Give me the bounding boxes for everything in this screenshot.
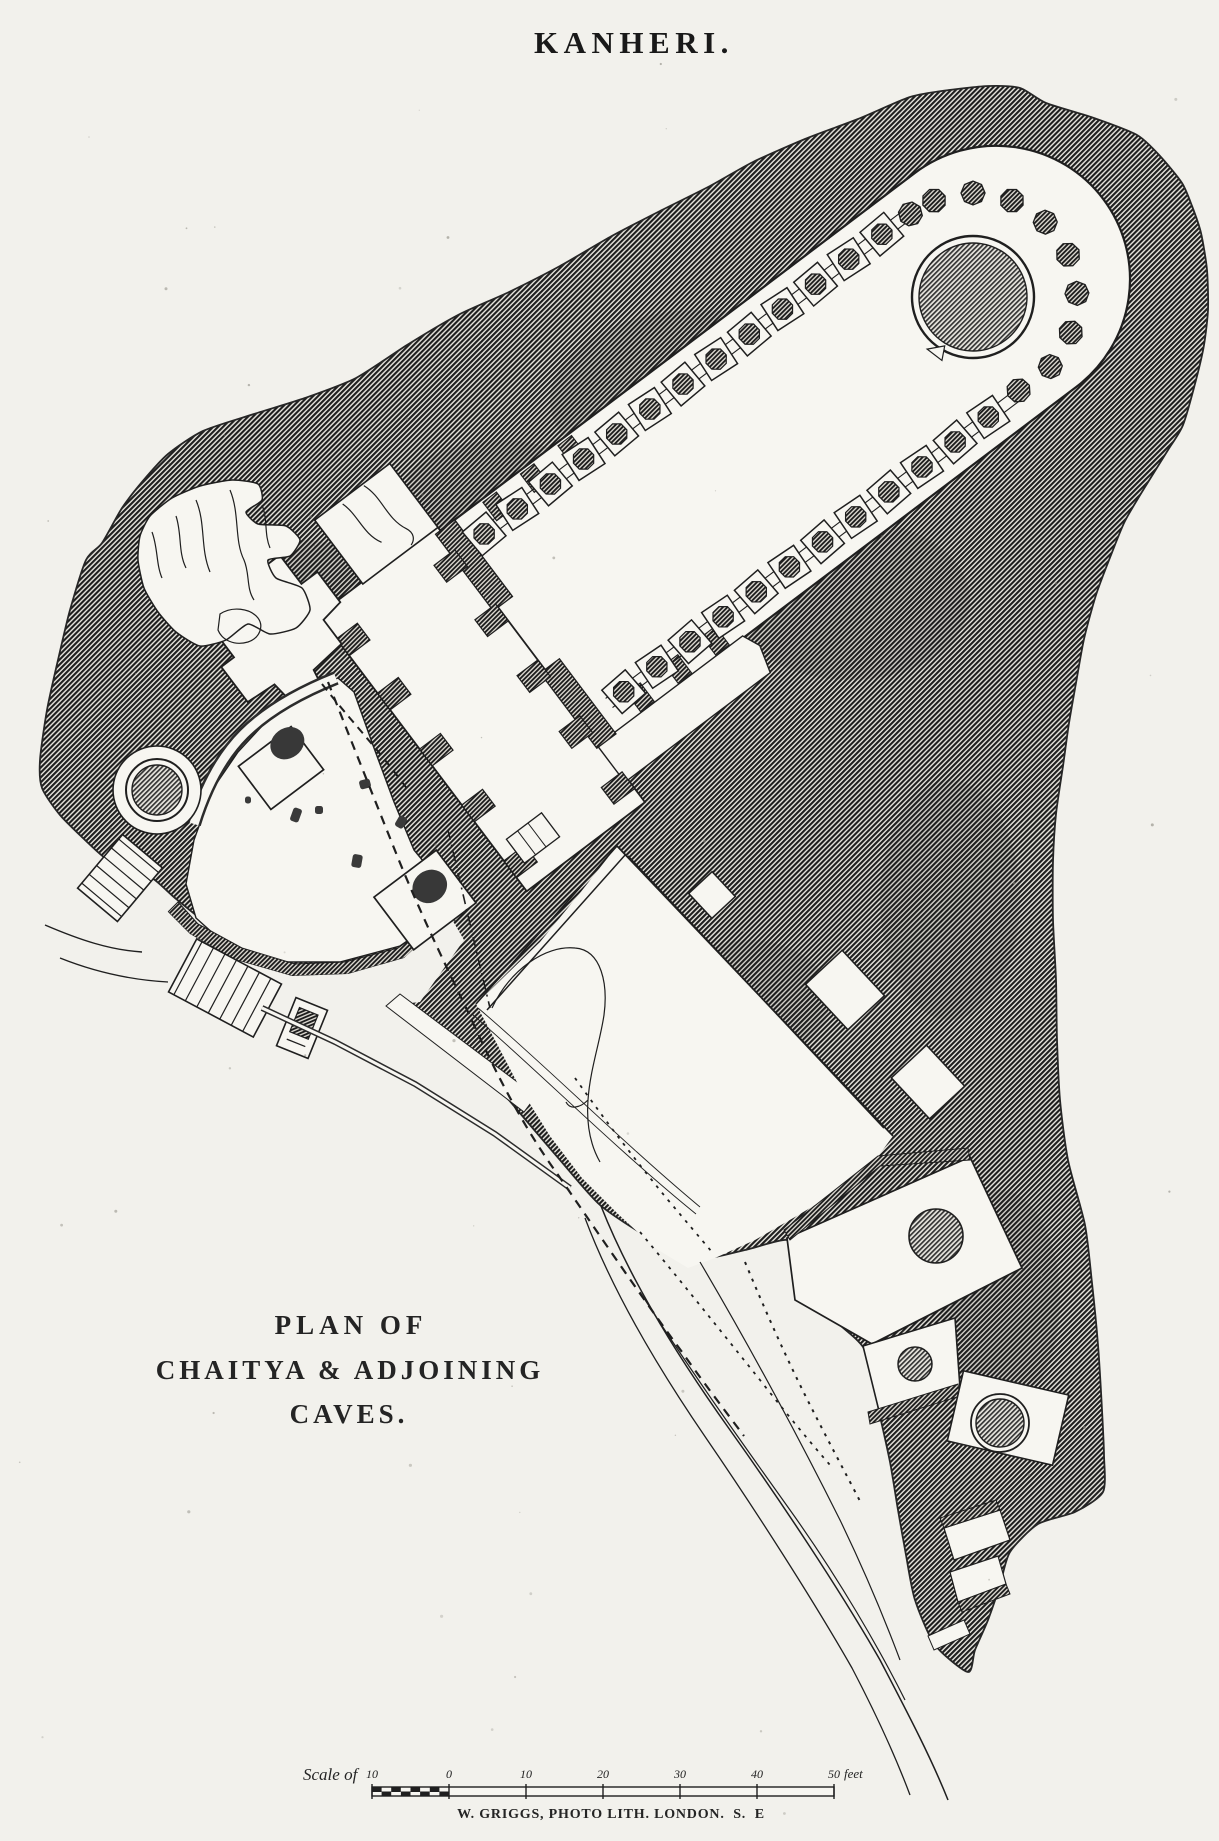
svg-text:W. GRIGGS, PHOTO LITH. LONDON.: W. GRIGGS, PHOTO LITH. LONDON. S. E xyxy=(457,1807,765,1822)
svg-text:Scale of: Scale of xyxy=(303,1765,360,1784)
svg-text:CHAITYA & ADJOINING: CHAITYA & ADJOINING xyxy=(156,1355,545,1385)
svg-text:30: 30 xyxy=(673,1767,686,1781)
svg-text:feet: feet xyxy=(844,1766,863,1781)
svg-text:10: 10 xyxy=(366,1767,378,1781)
svg-text:PLAN OF: PLAN OF xyxy=(275,1310,428,1340)
svg-text:50: 50 xyxy=(828,1767,840,1781)
svg-text:0: 0 xyxy=(446,1767,452,1781)
svg-text:20: 20 xyxy=(597,1767,609,1781)
svg-text:KANHERI.: KANHERI. xyxy=(534,25,734,60)
svg-text:40: 40 xyxy=(751,1767,763,1781)
svg-text:CAVES.: CAVES. xyxy=(290,1399,409,1429)
svg-text:10: 10 xyxy=(520,1767,532,1781)
